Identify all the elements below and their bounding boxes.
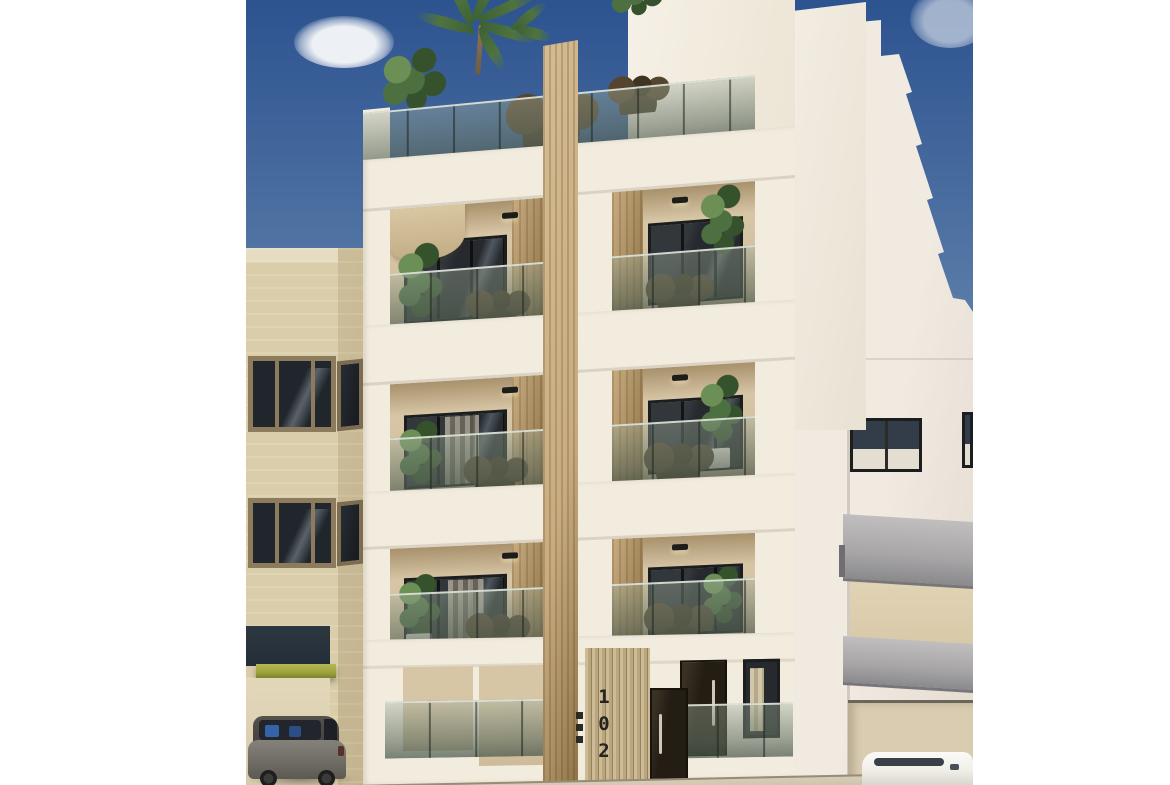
ceiling-light [672,196,688,203]
right-building-window-partial [962,412,973,468]
left-building-corner-window-upper-side [337,359,363,432]
car-mirror [950,764,959,770]
window-mullion [275,361,279,427]
ceiling-light [502,212,518,219]
balcony-floor3-right [612,181,755,318]
left-building-corner-window-lower-side [337,500,363,567]
window-pane [965,415,970,465]
window-pane [888,421,920,469]
car-wheel [260,770,277,785]
car-rear-window [324,719,337,742]
balcony-floor2-right [612,362,755,487]
car-windows [259,720,321,740]
window-mullion [275,503,279,563]
main-building: 102 [363,0,795,785]
balcony-floor2-left [390,375,543,500]
ceiling-light [502,552,518,559]
left-building [246,248,368,785]
awning-bracket [839,545,845,577]
white-car [862,752,973,785]
balcony-floor3-left [390,198,543,336]
building-render-photo: 102 [246,0,973,785]
entrance-door-handle [659,714,662,754]
car-wheel [318,770,335,785]
left-building-corner-window-lower [248,498,336,568]
ground-terrace-balustrade [385,699,555,759]
ceiling-light [502,387,518,394]
gray-car [248,716,346,785]
left-building-dark-recess [246,626,330,666]
car-taillight [338,746,344,756]
ground-right-balustrade [673,702,793,758]
glass-reflection [280,368,335,432]
entrance-door [650,688,688,785]
house-number: 102 [593,686,615,767]
intercom-panel [576,712,583,744]
ceiling-light [672,544,688,551]
render-canvas: 102 [0,0,1170,785]
gray-awning-upper [843,514,973,589]
window-mullion [311,361,315,427]
olive-awning [256,664,336,678]
glass-reflection [280,509,335,568]
floor-1 [363,473,795,657]
balcony-floor1-right [612,533,755,646]
gray-awning-lower [843,636,973,693]
entrance-timber-slats: 102 [585,648,650,785]
timber-feature-column [543,40,578,785]
left-building-corner-window-upper [248,356,336,432]
floor-2 [363,300,795,502]
ceiling-light [672,374,688,381]
car-seat-blue [289,726,301,737]
window-mullion [311,503,315,563]
ground-floor [363,632,795,785]
car-seat-blue [265,725,279,737]
car-windshield [874,758,944,766]
